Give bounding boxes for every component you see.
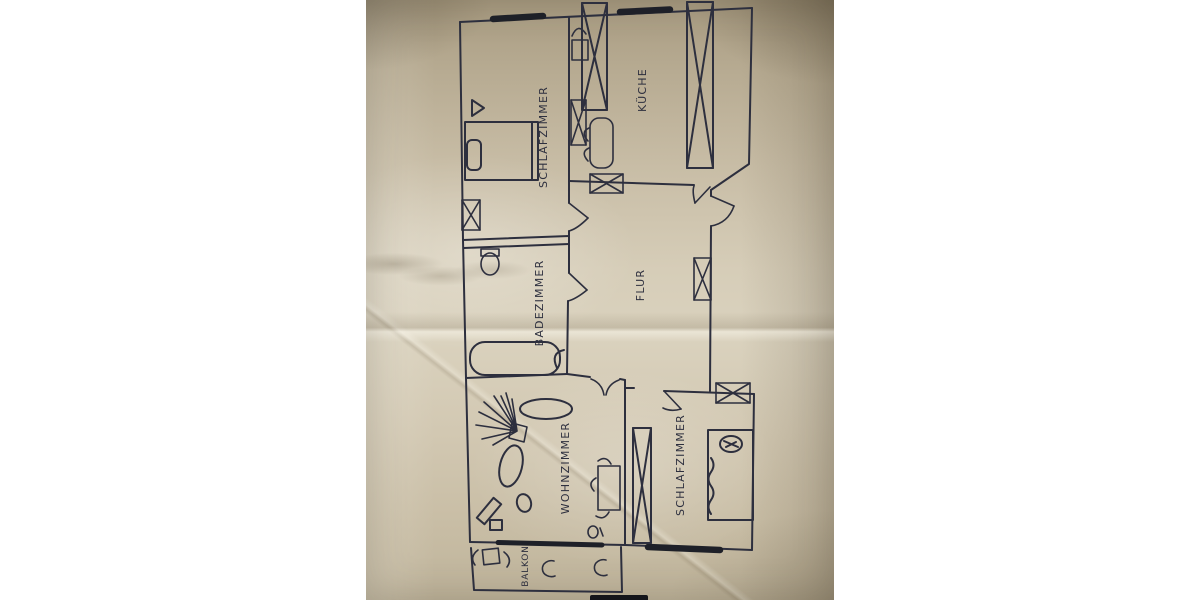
kitchen-radiator	[571, 100, 586, 145]
lamp-symbol	[472, 100, 484, 116]
small-stool	[588, 526, 603, 538]
door-bedroom2	[663, 391, 681, 410]
room-label-schlafzimmer-2: SCHLAFZIMMER	[674, 414, 687, 516]
room-labels: SCHLAFZIMMER KÜCHE BADEZIMMER FLUR WOHNZ…	[521, 68, 687, 587]
room-label-flur: FLUR	[634, 269, 647, 301]
wall-bedroom2-top-right	[664, 391, 754, 394]
bed-2	[708, 430, 753, 520]
balcony-chair	[542, 561, 555, 577]
coffee-table	[495, 443, 527, 489]
room-label-kueche: KÜCHE	[636, 68, 649, 112]
window-bar-balcony-door	[498, 543, 602, 546]
kitchen-counter	[687, 2, 713, 168]
toilet	[481, 249, 499, 275]
balcony-chair	[473, 550, 478, 565]
wall-hall-right-lower	[710, 226, 711, 391]
balcony-table	[482, 548, 499, 565]
door-livingroom	[591, 379, 619, 395]
balcony-chair	[594, 560, 607, 576]
window-bar-kitchen	[620, 10, 670, 13]
wall-bath-right-lower	[567, 301, 568, 374]
window-bar-bedroom1	[493, 16, 543, 19]
plant	[476, 393, 527, 445]
sofa	[520, 399, 572, 419]
kitchen-sink	[572, 28, 588, 60]
bed	[465, 122, 538, 180]
stool	[515, 492, 533, 513]
room-label-badezimmer: BADEZIMMER	[533, 260, 546, 347]
dining-table	[591, 459, 620, 518]
floor-plan-photo: SCHLAFZIMMER KÜCHE BADEZIMMER FLUR WOHNZ…	[366, 0, 834, 600]
wall-kitchen-bottom	[569, 181, 694, 185]
wall-kitchen-right	[711, 8, 752, 190]
room-label-schlafzimmer-1: SCHLAFZIMMER	[537, 86, 550, 188]
page: { "photo": { "description": "Hand-drawn …	[0, 0, 1200, 600]
door-bedroom1	[569, 203, 588, 231]
balcony-chair	[504, 552, 509, 567]
door-entry	[711, 196, 734, 226]
room-label-wohnzimmer: WOHNZIMMER	[559, 422, 572, 514]
floor-plan-sketch: SCHLAFZIMMER KÜCHE BADEZIMMER FLUR WOHNZ…	[366, 0, 834, 600]
livingroom-furniture	[476, 393, 620, 538]
bathtub	[470, 342, 560, 375]
wall-livingroom-top-left	[567, 374, 590, 377]
door-bathroom	[568, 273, 587, 301]
wall-bedroom1-bath-outer	[463, 236, 569, 240]
kitchen-table	[584, 118, 613, 168]
radiator	[462, 200, 480, 230]
wall-balcony-outline	[471, 547, 622, 592]
balcony-furniture	[473, 548, 607, 576]
wall-left	[460, 22, 470, 542]
wardrobe	[633, 428, 651, 543]
room-label-balkon: BALKON	[521, 545, 531, 586]
table-edge-beyond-paper	[590, 595, 648, 600]
hall-radiator-right	[694, 258, 711, 300]
wall-bedroom1-bath-inner	[464, 244, 569, 248]
side-table	[490, 520, 502, 530]
bedroom1-furniture	[462, 100, 538, 230]
bedroom2-furniture	[633, 383, 753, 543]
window-bar-bedroom2	[648, 547, 720, 550]
kitchen-cabinet	[582, 3, 607, 110]
pillow	[467, 140, 481, 170]
door-kitchen	[693, 186, 710, 203]
bathroom-furniture	[470, 249, 564, 375]
